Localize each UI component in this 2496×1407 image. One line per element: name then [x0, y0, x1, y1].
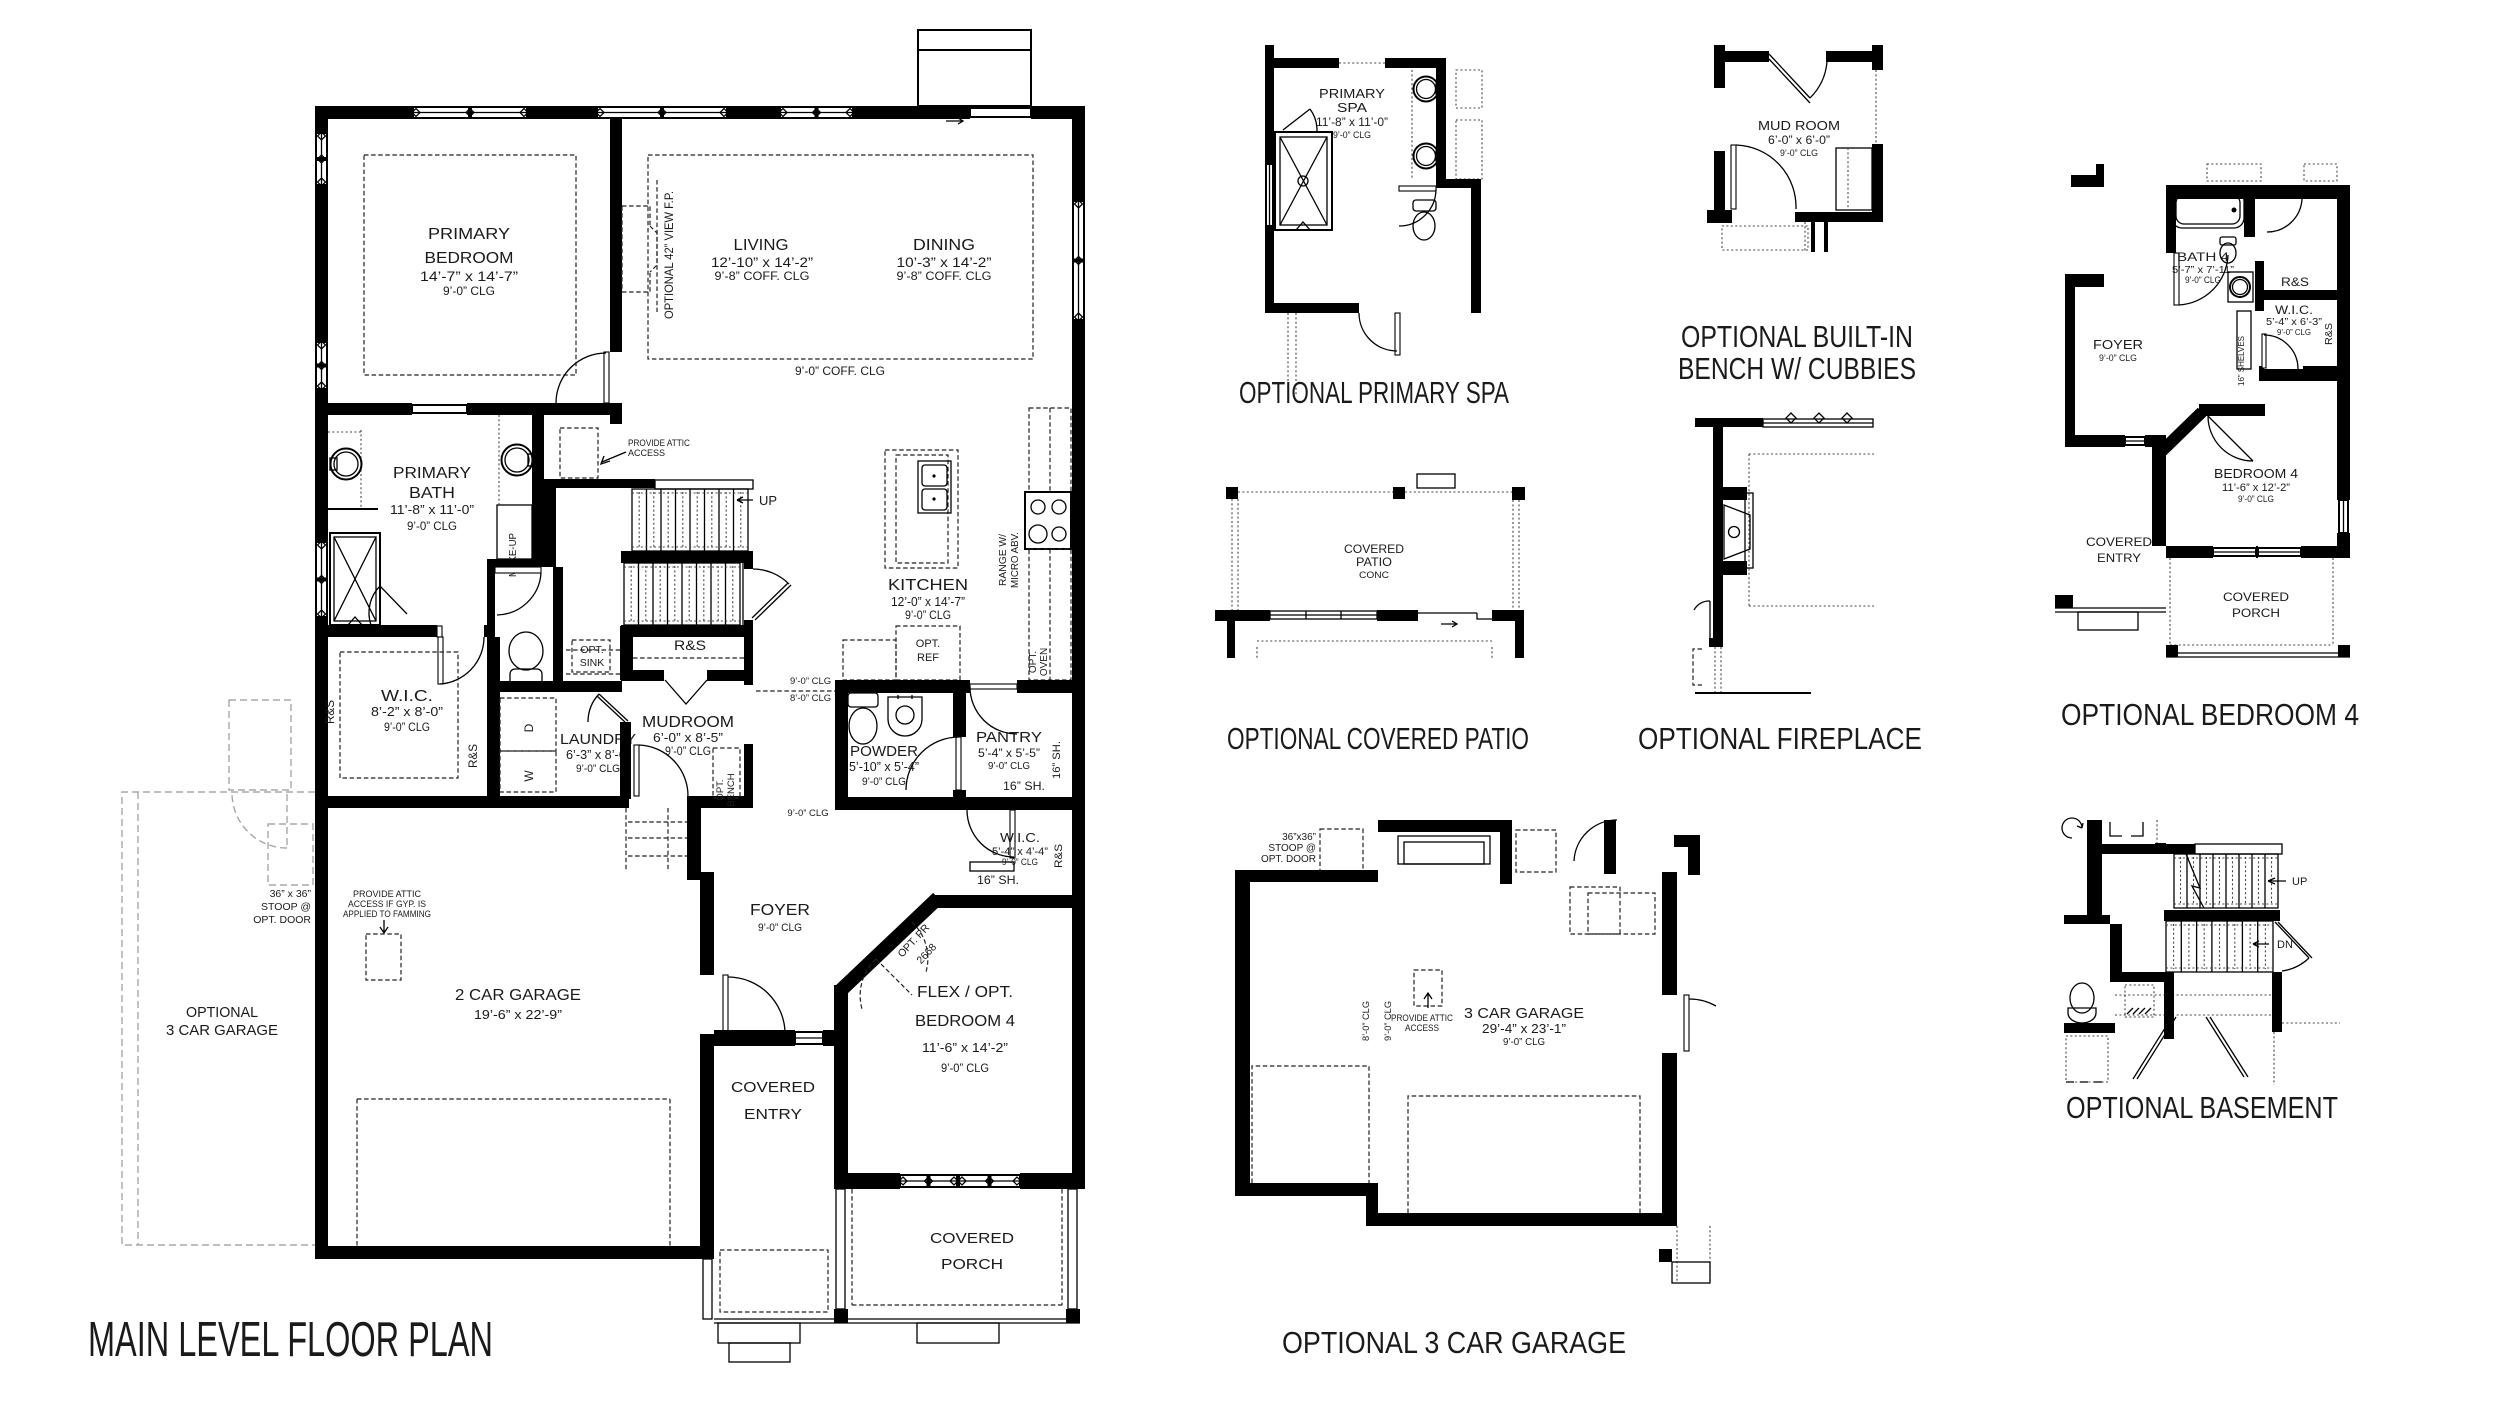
svg-text:BEDROOM 4: BEDROOM 4 — [915, 1013, 1015, 1030]
svg-text:OPTIONAL BUILT-IN: OPTIONAL BUILT-IN — [1681, 319, 1913, 354]
svg-text:9’-0” CLG: 9’-0” CLG — [2277, 327, 2311, 337]
svg-text:9’-8” COFF. CLG: 9’-8” COFF. CLG — [715, 271, 810, 283]
svg-text:6’-0” x 6’-0”: 6’-0” x 6’-0” — [1768, 135, 1830, 147]
svg-text:OPTIONAL BEDROOM 4: OPTIONAL BEDROOM 4 — [2061, 697, 2359, 732]
svg-text:PORCH: PORCH — [2232, 606, 2280, 620]
svg-text:6’-0” x 8’-5”: 6’-0” x 8’-5” — [653, 730, 723, 745]
svg-text:SINK: SINK — [580, 657, 605, 669]
svg-text:16” SH.: 16” SH. — [1003, 779, 1045, 793]
svg-text:STOOP @: STOOP @ — [261, 901, 311, 913]
svg-text:OPTIONAL 3 CAR GARAGE: OPTIONAL 3 CAR GARAGE — [1282, 1325, 1626, 1360]
svg-text:SPA: SPA — [1337, 101, 1368, 115]
svg-text:11’-6” x 12’-2”: 11’-6” x 12’-2” — [2222, 482, 2290, 494]
svg-text:9’-0” CLG: 9’-0” CLG — [576, 763, 620, 775]
svg-text:LIVING: LIVING — [734, 237, 789, 254]
svg-text:OPT.: OPT. — [580, 644, 603, 656]
svg-text:9’-0” CLG: 9’-0” CLG — [384, 722, 430, 734]
svg-text:MUD ROOM: MUD ROOM — [1758, 119, 1840, 133]
svg-text:11’-8” x 11’-0”: 11’-8” x 11’-0” — [1316, 117, 1388, 129]
svg-text:36” x 36”: 36” x 36” — [270, 888, 312, 900]
svg-text:9’-0” CLG: 9’-0” CLG — [2238, 494, 2274, 504]
svg-text:KITCHEN: KITCHEN — [888, 577, 968, 594]
svg-text:PRIMARY: PRIMARY — [1319, 87, 1386, 101]
svg-text:MUDROOM: MUDROOM — [642, 714, 734, 731]
svg-text:OPTIONAL COVERED PATIO: OPTIONAL COVERED PATIO — [1227, 721, 1529, 756]
svg-text:9’-0” CLG: 9’-0” CLG — [862, 776, 906, 788]
svg-text:OPT. DOOR: OPT. DOOR — [253, 914, 311, 926]
svg-text:8’-0” CLG: 8’-0” CLG — [790, 693, 831, 704]
svg-text:OPT.: OPT. — [715, 779, 726, 800]
svg-text:OPTIONAL 42” VIEW F.P.: OPTIONAL 42” VIEW F.P. — [664, 191, 676, 319]
svg-text:PROVIDE ATTIC: PROVIDE ATTIC — [628, 438, 690, 448]
svg-text:16” SHELVES: 16” SHELVES — [2236, 336, 2246, 386]
svg-text:9’-0” CLG: 9’-0” CLG — [790, 676, 831, 687]
svg-text:D: D — [522, 723, 536, 732]
svg-text:9’-0” CLG: 9’-0” CLG — [905, 610, 951, 622]
svg-text:COVERED: COVERED — [930, 1231, 1014, 1247]
svg-text:9’-0” COFF. CLG: 9’-0” COFF. CLG — [795, 364, 885, 378]
svg-text:UP: UP — [2292, 876, 2307, 888]
svg-text:9’-0” CLG: 9’-0” CLG — [1333, 130, 1371, 141]
svg-text:OPT. DOOR: OPT. DOOR — [1261, 854, 1316, 865]
svg-text:16” SH.: 16” SH. — [977, 873, 1019, 887]
svg-text:FOYER: FOYER — [2093, 338, 2143, 352]
svg-text:9’-0” CLG: 9’-0” CLG — [2185, 275, 2221, 285]
svg-text:14’-7” x 14’-7”: 14’-7” x 14’-7” — [420, 269, 518, 284]
svg-text:FLEX / OPT.: FLEX / OPT. — [917, 984, 1013, 1001]
svg-text:19’-6” x 22’-9”: 19’-6” x 22’-9” — [474, 1007, 562, 1022]
svg-text:R&S: R&S — [2281, 277, 2309, 289]
svg-text:BENCH W/ CUBBIES: BENCH W/ CUBBIES — [1678, 351, 1916, 386]
svg-text:COVERED: COVERED — [2086, 535, 2152, 549]
svg-text:OPT.: OPT. — [1028, 651, 1039, 673]
svg-text:PANTRY: PANTRY — [976, 730, 1042, 746]
svg-text:2 CAR GARAGE: 2 CAR GARAGE — [455, 987, 581, 1004]
svg-text:W.I.C.: W.I.C. — [1000, 831, 1040, 845]
svg-text:11’-8” x 11’-0”: 11’-8” x 11’-0” — [390, 502, 474, 517]
svg-text:COVERED: COVERED — [2223, 590, 2289, 604]
svg-text:11’-6” x 14’-2”: 11’-6” x 14’-2” — [922, 1040, 1008, 1055]
svg-text:8’-0” CLG: 8’-0” CLG — [1361, 1001, 1372, 1041]
svg-text:BATH: BATH — [409, 485, 455, 502]
svg-text:PATIO: PATIO — [1356, 557, 1392, 569]
svg-text:ACCESS: ACCESS — [1405, 1023, 1439, 1033]
svg-text:W.I.C.: W.I.C. — [381, 688, 433, 705]
svg-text:10’-3” x 14’-2”: 10’-3” x 14’-2” — [897, 255, 992, 270]
svg-text:5’-4” x 5’-5”: 5’-4” x 5’-5” — [978, 746, 1040, 760]
svg-text:R&S: R&S — [468, 744, 480, 768]
svg-text:PRIMARY: PRIMARY — [428, 226, 510, 243]
svg-text:R&S: R&S — [2323, 323, 2335, 345]
svg-text:DN: DN — [2277, 939, 2293, 951]
svg-text:9’-0” CLG: 9’-0” CLG — [665, 746, 711, 758]
svg-text:12’-10” x 14’-2”: 12’-10” x 14’-2” — [711, 255, 813, 270]
svg-text:MAIN LEVEL FLOOR PLAN: MAIN LEVEL FLOOR PLAN — [88, 1313, 493, 1367]
svg-text:PORCH: PORCH — [941, 1257, 1003, 1273]
svg-text:ENTRY: ENTRY — [744, 1107, 802, 1123]
svg-text:W: W — [522, 770, 536, 782]
svg-text:OVEN: OVEN — [1039, 648, 1050, 676]
svg-text:BEDROOM: BEDROOM — [425, 250, 514, 267]
svg-text:9’-0” CLG: 9’-0” CLG — [988, 760, 1030, 772]
svg-text:BATH 4: BATH 4 — [2177, 250, 2229, 264]
svg-text:8’-2” x 8’-0”: 8’-2” x 8’-0” — [371, 704, 443, 719]
svg-text:9’-0” CLG: 9’-0” CLG — [787, 808, 828, 819]
svg-text:12’-0” x 14’-7”: 12’-0” x 14’-7” — [891, 594, 965, 609]
svg-text:REF: REF — [917, 652, 939, 664]
svg-text:9’-0” CLG: 9’-0” CLG — [1383, 1001, 1394, 1041]
svg-text:9’-0” CLG: 9’-0” CLG — [443, 286, 495, 298]
svg-text:R&S: R&S — [674, 638, 706, 653]
svg-text:RANGE W/: RANGE W/ — [997, 534, 1009, 586]
svg-text:3 CAR GARAGE: 3 CAR GARAGE — [1464, 1006, 1584, 1022]
svg-text:PROVIDE ATTIC: PROVIDE ATTIC — [1391, 1013, 1453, 1023]
svg-text:BENCH: BENCH — [726, 773, 737, 806]
svg-text:9’-8” COFF. CLG: 9’-8” COFF. CLG — [897, 271, 992, 283]
svg-text:FOYER: FOYER — [750, 902, 810, 919]
svg-text:OPTIONAL PRIMARY SPA: OPTIONAL PRIMARY SPA — [1239, 375, 1509, 410]
svg-text:UP: UP — [759, 493, 777, 508]
svg-text:16” SH.: 16” SH. — [1051, 741, 1063, 779]
svg-text:POWDER: POWDER — [850, 744, 918, 760]
svg-text:29’-4” x 23’-1”: 29’-4” x 23’-1” — [1482, 1022, 1566, 1036]
svg-text:MICRO ABV.: MICRO ABV. — [1009, 532, 1021, 588]
svg-text:9’-0” CLG: 9’-0” CLG — [1503, 1036, 1545, 1048]
svg-text:9’-0” CLG: 9’-0” CLG — [758, 922, 802, 934]
svg-text:3 CAR GARAGE: 3 CAR GARAGE — [166, 1022, 278, 1039]
svg-text:R&S: R&S — [325, 700, 337, 724]
svg-text:W.I.C.: W.I.C. — [2275, 305, 2313, 317]
svg-text:OPTIONAL: OPTIONAL — [186, 1004, 258, 1021]
svg-text:9’-0” CLG: 9’-0” CLG — [407, 521, 457, 533]
svg-text:5’-10” x 5’-4”: 5’-10” x 5’-4” — [849, 760, 919, 774]
svg-text:R&S: R&S — [1053, 844, 1065, 868]
svg-text:OPT.: OPT. — [916, 638, 940, 650]
svg-text:36”x36”: 36”x36” — [1282, 832, 1316, 843]
svg-text:PRIMARY: PRIMARY — [393, 465, 471, 482]
svg-text:ACCESS: ACCESS — [628, 448, 665, 458]
svg-text:BEDROOM 4: BEDROOM 4 — [2214, 467, 2298, 481]
svg-text:OPTIONAL BASEMENT: OPTIONAL BASEMENT — [2066, 1090, 2338, 1125]
svg-text:COVERED: COVERED — [1344, 544, 1404, 556]
svg-text:STOOP @: STOOP @ — [1268, 843, 1316, 854]
svg-text:APPLIED TO FAMMING: APPLIED TO FAMMING — [343, 909, 431, 920]
svg-text:OPTIONAL FIREPLACE: OPTIONAL FIREPLACE — [1638, 721, 1922, 756]
svg-text:9’-0” CLG: 9’-0” CLG — [2099, 353, 2137, 364]
svg-text:ENTRY: ENTRY — [2097, 551, 2141, 565]
svg-text:DINING: DINING — [913, 237, 975, 254]
svg-text:CONC: CONC — [1359, 570, 1389, 581]
svg-text:COVERED: COVERED — [731, 1080, 815, 1096]
svg-text:9’-0” CLG: 9’-0” CLG — [1780, 148, 1818, 159]
svg-text:9’-0” CLG: 9’-0” CLG — [941, 1063, 989, 1075]
